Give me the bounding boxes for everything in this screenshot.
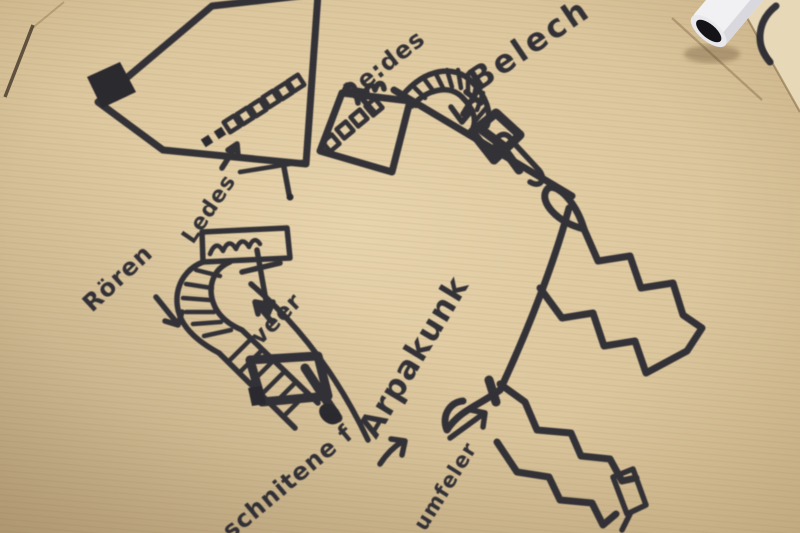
pen-shadow — [684, 45, 740, 63]
sketch-canvas: Le:des Belech Ledes Rören veer schnitene… — [0, 0, 800, 533]
pin-dot — [287, 194, 294, 201]
photo-of-sketch: Le:des Belech Ledes Rören veer schnitene… — [0, 0, 800, 533]
